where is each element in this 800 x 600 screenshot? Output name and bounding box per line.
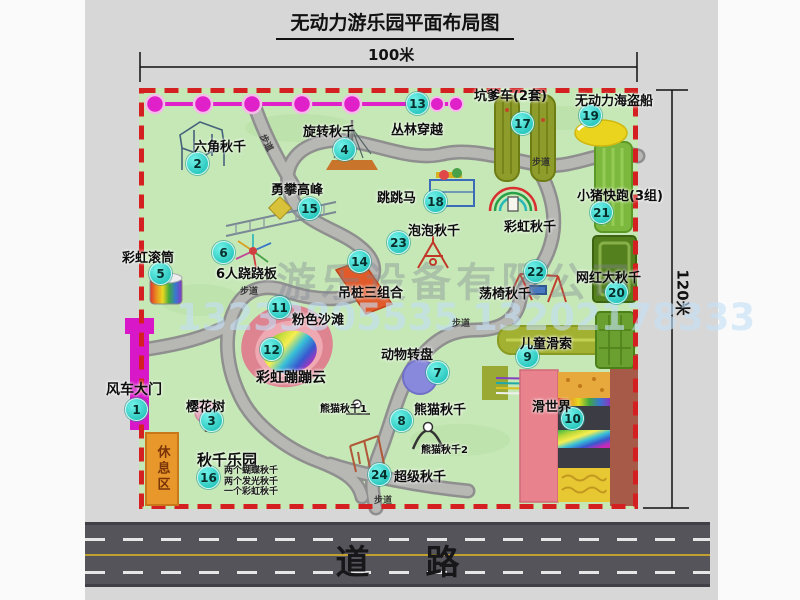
path-tag-2: 步道 [532, 155, 550, 168]
label-rainbow-roller: 彩虹滚筒 [122, 247, 174, 266]
road-label: 道路 [85, 535, 710, 584]
label-rocking-chair: 荡椅秋千 [479, 283, 531, 302]
label-hexagon-swing: 六角秋千 [194, 136, 246, 155]
badge-6: 6 [212, 241, 235, 264]
badge-23: 23 [387, 231, 410, 254]
label-rainbow-swing: 彩虹秋千 [504, 216, 556, 235]
badge-13: 13 [406, 92, 429, 115]
note-line: 一个彩虹秋千 [224, 487, 278, 498]
badge-17: 17 [511, 112, 534, 135]
playground-layout-screenshot: 无动力游乐园平面布局图 100米 120米 游乐设备有限公司 132338055… [0, 0, 800, 600]
label-cherry-tree: 樱花树 [186, 396, 225, 415]
badge-22: 22 [524, 260, 547, 283]
note-line: 两个发光秋千 [224, 477, 278, 488]
badge-2: 2 [186, 152, 209, 175]
badge-14: 14 [348, 250, 371, 273]
label-pit-cart: 坑爹车(2套) [474, 85, 547, 104]
label-panda-swing: 熊猫秋千 [414, 399, 466, 418]
label-panda-swing-1: 熊猫秋千1 [320, 400, 367, 415]
label-climbing-peak: 勇攀高峰 [271, 179, 323, 198]
swing-park-notes: 两个蝴蝶秋千 两个发光秋千 一个彩虹秋千 [224, 466, 278, 498]
label-super-swing: 超级秋千 [394, 466, 446, 485]
label-kids-zipline: 儿童滑索 [520, 333, 572, 352]
label-bubble-swing: 泡泡秋千 [408, 220, 460, 239]
label-pink-beach: 粉色沙滩 [292, 309, 344, 328]
label-piggy-run: 小猪快跑(3组) [577, 185, 663, 204]
path-tag-4: 步道 [452, 316, 470, 329]
badge-18: 18 [424, 190, 447, 213]
label-hanging-combo: 吊桩三组合 [338, 282, 403, 301]
path-tag-3: 步道 [240, 284, 258, 297]
badge-24: 24 [368, 463, 391, 486]
badge-15: 15 [298, 197, 321, 220]
rest-area-label: 休息区 [153, 445, 172, 493]
badge-8: 8 [390, 409, 413, 432]
slide-world-icon [520, 354, 638, 506]
badge-4: 4 [333, 138, 356, 161]
label-pirate-ship: 无动力海盗船 [575, 90, 653, 109]
label-web-swing: 网红大秋千 [576, 267, 641, 286]
note-line: 两个蝴蝶秋千 [224, 466, 278, 477]
label-jungle-crossing: 丛林穿越 [391, 119, 443, 138]
badge-21: 21 [590, 201, 613, 224]
badge-7: 7 [426, 361, 449, 384]
label-jumping-horse: 跳跳马 [377, 187, 416, 206]
badge-1: 1 [125, 398, 148, 421]
label-seesaw-six: 6人跷跷板 [216, 263, 277, 282]
rest-area-box: 休息区 [145, 432, 179, 506]
label-panda-swing-2: 熊猫秋千2 [421, 441, 468, 456]
badge-11: 11 [268, 296, 291, 319]
badge-12: 12 [260, 338, 283, 361]
label-slide-world: 滑世界 [532, 396, 571, 415]
road: 道路 [85, 522, 710, 587]
path-tag-5: 步道 [374, 493, 392, 506]
label-animal-carousel: 动物转盘 [381, 344, 433, 363]
label-rainbow-cloud: 彩虹蹦蹦云 [256, 367, 326, 387]
label-windmill-gate: 风车大门 [106, 379, 162, 399]
label-rotating-swing: 旋转秋千 [303, 121, 355, 140]
